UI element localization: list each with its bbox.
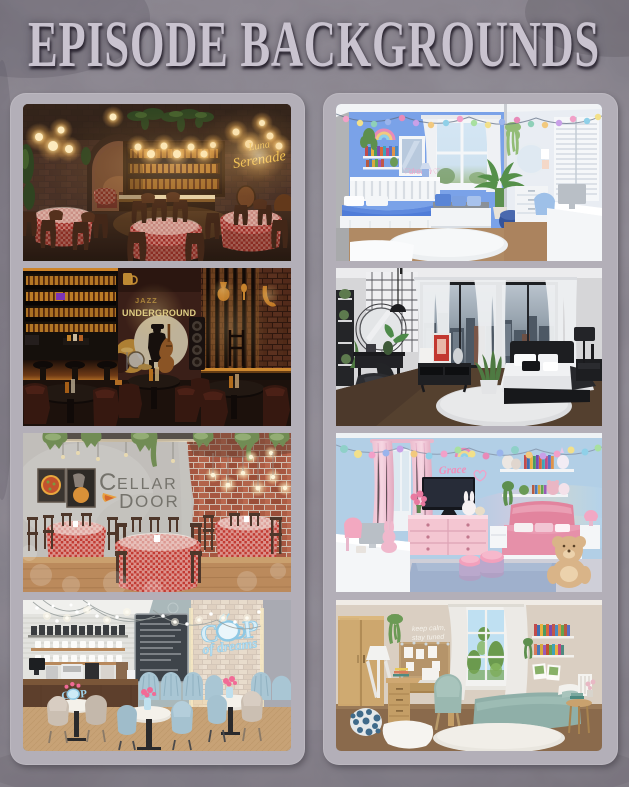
svg-text:C: C — [99, 469, 116, 496]
svg-text:keep calm,: keep calm, — [412, 625, 446, 633]
svg-text:stay tuned: stay tuned — [412, 634, 446, 642]
svg-text:P: P — [80, 688, 88, 701]
svg-text:Grace: Grace — [439, 464, 467, 477]
svg-text:D: D — [119, 491, 134, 513]
svg-text:OOR: OOR — [135, 492, 180, 511]
